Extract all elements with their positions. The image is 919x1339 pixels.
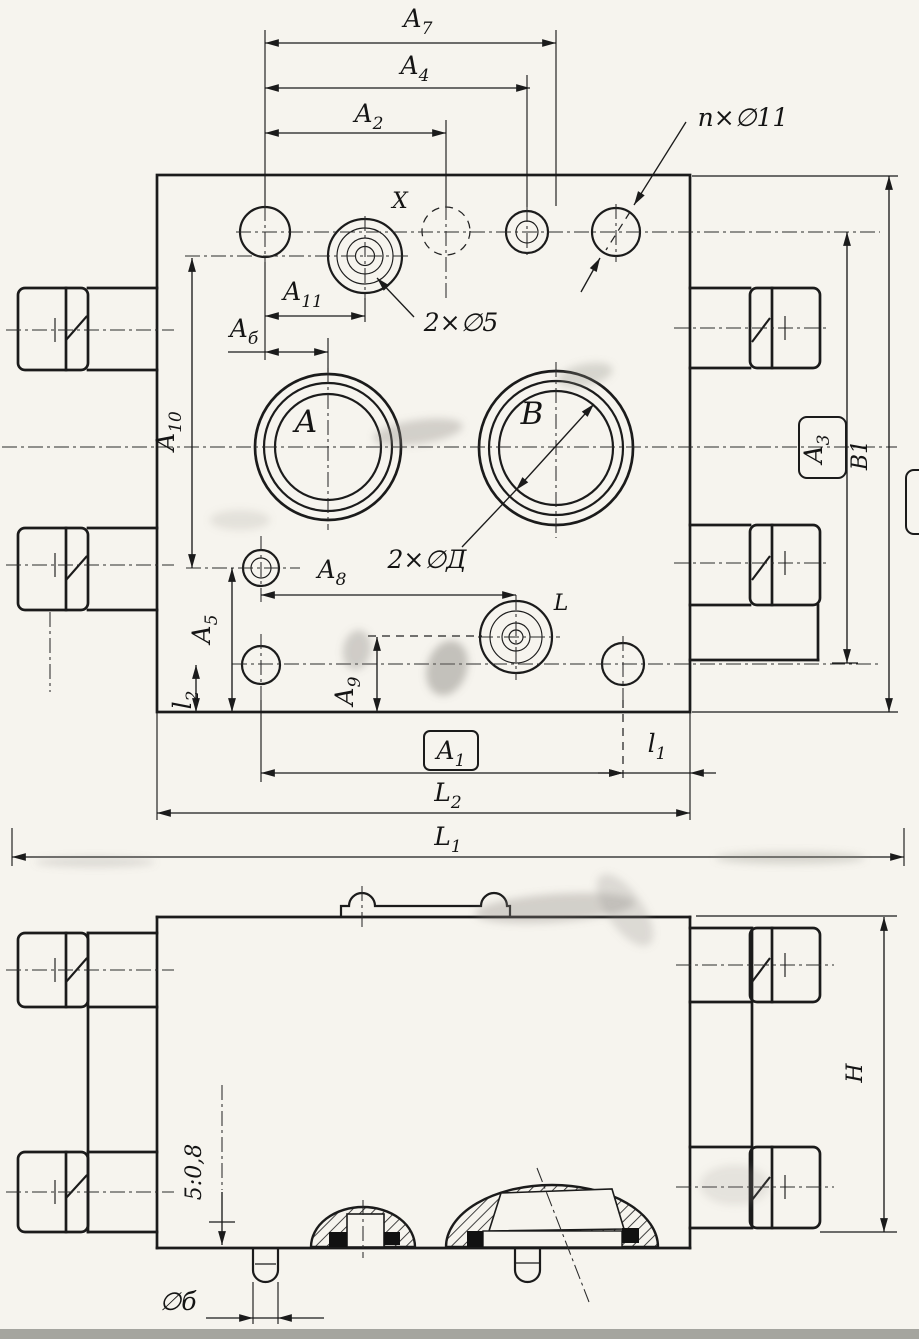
bottom-dimensions	[206, 916, 897, 1324]
technical-drawing: A7 A4 A2 X п×∅11 A11 Aб 2×∅5 A10 A B 2×∅…	[0, 0, 919, 1339]
body-outline	[18, 886, 820, 1248]
datum-frame-clipped	[906, 470, 919, 534]
dim-step-label: 5:0,8	[182, 1144, 207, 1200]
dim-l2-label: l2	[168, 691, 203, 710]
callout-pilot-holes: 2×∅5	[423, 308, 499, 337]
dim-L1-label: L1	[433, 822, 461, 857]
port-l-label: L	[553, 591, 569, 616]
dim-a4-label: A4	[399, 51, 430, 86]
dim-a5-label: A5	[187, 615, 222, 646]
top-view: A7 A4 A2 X п×∅11 A11 Aб 2×∅5 A10 A B 2×∅…	[2, 4, 919, 866]
dim-a7-label: A7	[402, 4, 433, 39]
dim-l1-label: l1	[648, 729, 667, 764]
bottom-bosses	[253, 1168, 658, 1302]
dim-a3-label: A3	[799, 435, 834, 466]
dim-a8-label: A8	[316, 555, 347, 590]
dim-a11-label: A11	[281, 277, 323, 312]
port-x-label: X	[390, 189, 409, 214]
scan-edge-band	[0, 1329, 919, 1339]
dim-a9-label: A9	[330, 676, 365, 707]
dim-L2-label: L2	[433, 778, 461, 813]
callout-mount-holes: п×∅11	[698, 103, 789, 132]
dim-b1-label: B1	[848, 440, 873, 471]
centerlines	[2, 204, 897, 700]
dim-a1-label: A1	[435, 736, 466, 771]
extension-lines	[12, 30, 904, 866]
callout-main-ports: 2×∅Д	[387, 545, 468, 574]
top-view-labels: A7 A4 A2 X п×∅11 A11 Aб 2×∅5 A10 A B 2×∅…	[151, 4, 873, 857]
dim-h-label: H	[843, 1063, 868, 1084]
port-a-label: A	[292, 404, 317, 440]
port-b-label: B	[520, 396, 544, 432]
bottom-view: H 5:0,8 ∅б	[6, 886, 897, 1324]
bottom-centerlines	[6, 953, 834, 1204]
drawing-sheet: A7 A4 A2 X п×∅11 A11 Aб 2×∅5 A10 A B 2×∅…	[0, 0, 919, 1339]
dim-a6-label: Aб	[228, 314, 259, 349]
dim-stud-dia-label: ∅б	[159, 1287, 197, 1316]
dimension-lines	[12, 43, 904, 857]
dim-a2-label: A2	[353, 99, 384, 134]
